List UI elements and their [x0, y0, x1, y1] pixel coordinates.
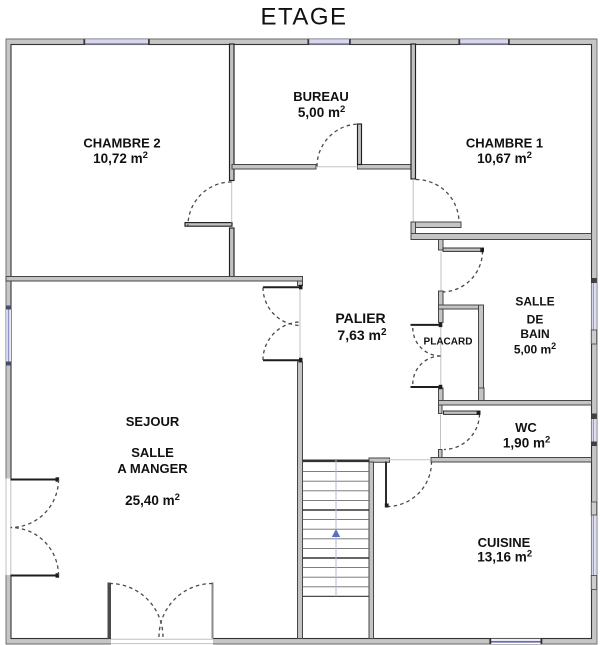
svg-text:PALIER: PALIER [335, 310, 385, 326]
svg-text:BUREAU: BUREAU [293, 89, 349, 104]
svg-text:SALLE: SALLE [131, 445, 174, 460]
svg-text:10,72 m2: 10,72 m2 [93, 150, 148, 166]
svg-text:ETAGE: ETAGE [260, 4, 347, 31]
svg-text:5,00 m2: 5,00 m2 [298, 104, 345, 120]
svg-text:7,63 m2: 7,63 m2 [337, 327, 387, 343]
svg-text:BAIN: BAIN [520, 327, 549, 341]
svg-text:10,67 m2: 10,67 m2 [477, 150, 532, 166]
svg-text:A MANGER: A MANGER [117, 461, 188, 476]
svg-text:CHAMBRE 2: CHAMBRE 2 [83, 136, 160, 151]
svg-text:5,00 m2: 5,00 m2 [514, 341, 556, 357]
svg-text:CHAMBRE 1: CHAMBRE 1 [466, 136, 543, 151]
svg-text:PLACARD: PLACARD [424, 336, 473, 347]
svg-text:25,40 m2: 25,40 m2 [125, 492, 180, 508]
svg-text:1,90 m2: 1,90 m2 [503, 435, 550, 451]
svg-text:SALLE: SALLE [515, 294, 554, 308]
svg-text:13,16 m2: 13,16 m2 [477, 548, 532, 564]
svg-text:DE: DE [527, 312, 544, 326]
svg-text:CUISINE: CUISINE [478, 535, 531, 550]
svg-text:WC: WC [515, 420, 537, 435]
svg-text:SEJOUR: SEJOUR [126, 414, 180, 429]
